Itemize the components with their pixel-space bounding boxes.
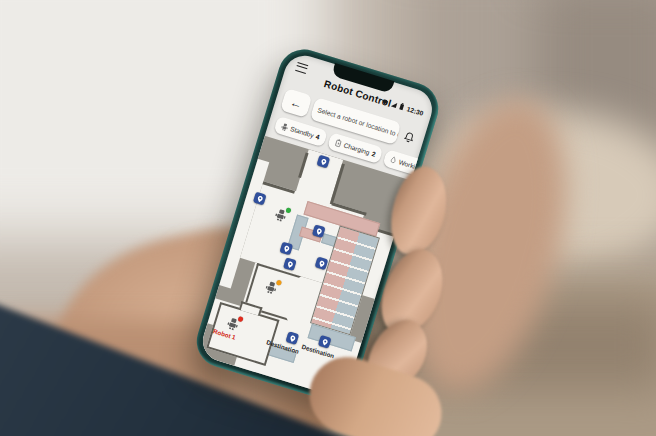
working-drop-icon	[389, 155, 397, 165]
back-arrow-icon: ←	[288, 95, 304, 112]
robot-standby-icon	[280, 122, 289, 132]
cell-signal-icon	[390, 100, 399, 109]
chip-label: Charging	[343, 141, 371, 156]
battery-icon	[398, 102, 405, 111]
photo-scene: Robot Control 12:30 ←	[0, 0, 656, 436]
wifi-icon	[380, 97, 390, 106]
chip-count: 4	[315, 133, 321, 141]
destination-pin-icon	[316, 258, 326, 268]
destination-pin-icon	[281, 243, 291, 253]
destination-pin-icon	[287, 333, 297, 343]
destination-pin-icon	[320, 337, 330, 347]
destination-pin-icon	[255, 193, 265, 203]
chip-count: 2	[371, 150, 377, 158]
battery-charging-icon	[334, 138, 343, 149]
destination-pin-icon	[318, 156, 328, 166]
destination-pin-icon	[314, 226, 324, 236]
destination-pin-icon	[285, 259, 295, 269]
bell-icon	[402, 130, 416, 146]
chip-label: Standby	[290, 125, 315, 139]
